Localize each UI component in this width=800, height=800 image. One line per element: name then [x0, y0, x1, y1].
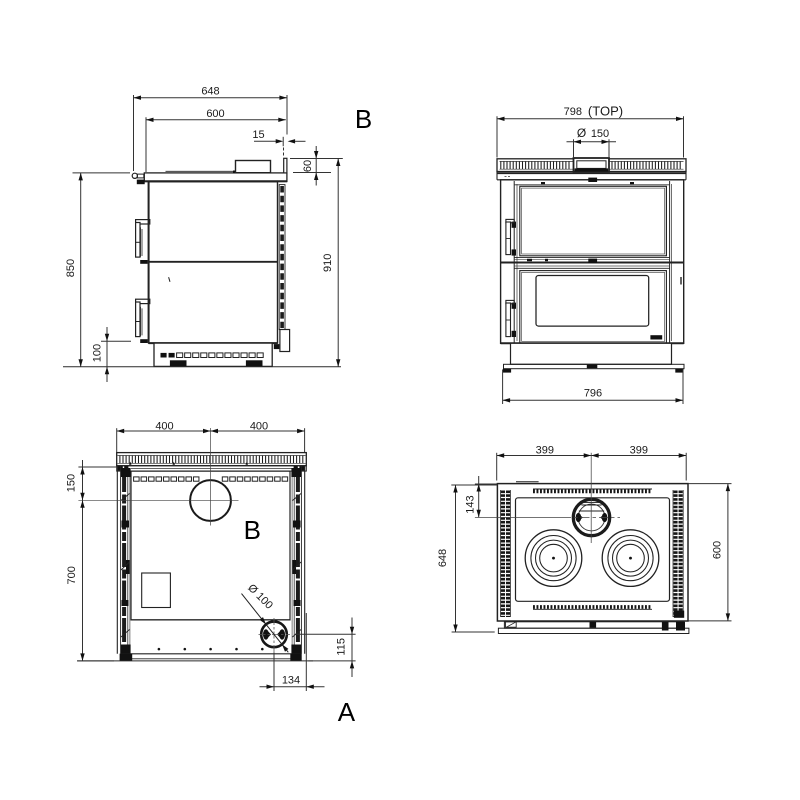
svg-text:600: 600	[206, 108, 224, 120]
svg-text:134: 134	[282, 675, 300, 687]
svg-text:150: 150	[66, 474, 78, 492]
svg-text:798: 798	[564, 106, 582, 118]
svg-text:Ø: Ø	[577, 126, 586, 140]
svg-text:150: 150	[591, 128, 609, 140]
svg-text:60: 60	[302, 160, 314, 172]
svg-text:B: B	[244, 515, 261, 545]
svg-text:100: 100	[92, 344, 104, 362]
svg-text:143: 143	[465, 495, 477, 513]
svg-text:15: 15	[252, 129, 264, 141]
svg-text:399: 399	[536, 444, 554, 456]
svg-text:796: 796	[584, 388, 602, 400]
svg-text:399: 399	[630, 444, 648, 456]
svg-text:A: A	[338, 697, 356, 727]
svg-text:115: 115	[336, 638, 348, 656]
svg-text:648: 648	[201, 86, 219, 98]
svg-text:648: 648	[437, 549, 449, 567]
svg-text:(TOP): (TOP)	[588, 104, 623, 119]
svg-text:600: 600	[711, 541, 723, 559]
svg-text:850: 850	[65, 259, 77, 277]
svg-text:B: B	[355, 104, 372, 134]
svg-text:700: 700	[66, 566, 78, 584]
svg-text:910: 910	[322, 254, 334, 272]
